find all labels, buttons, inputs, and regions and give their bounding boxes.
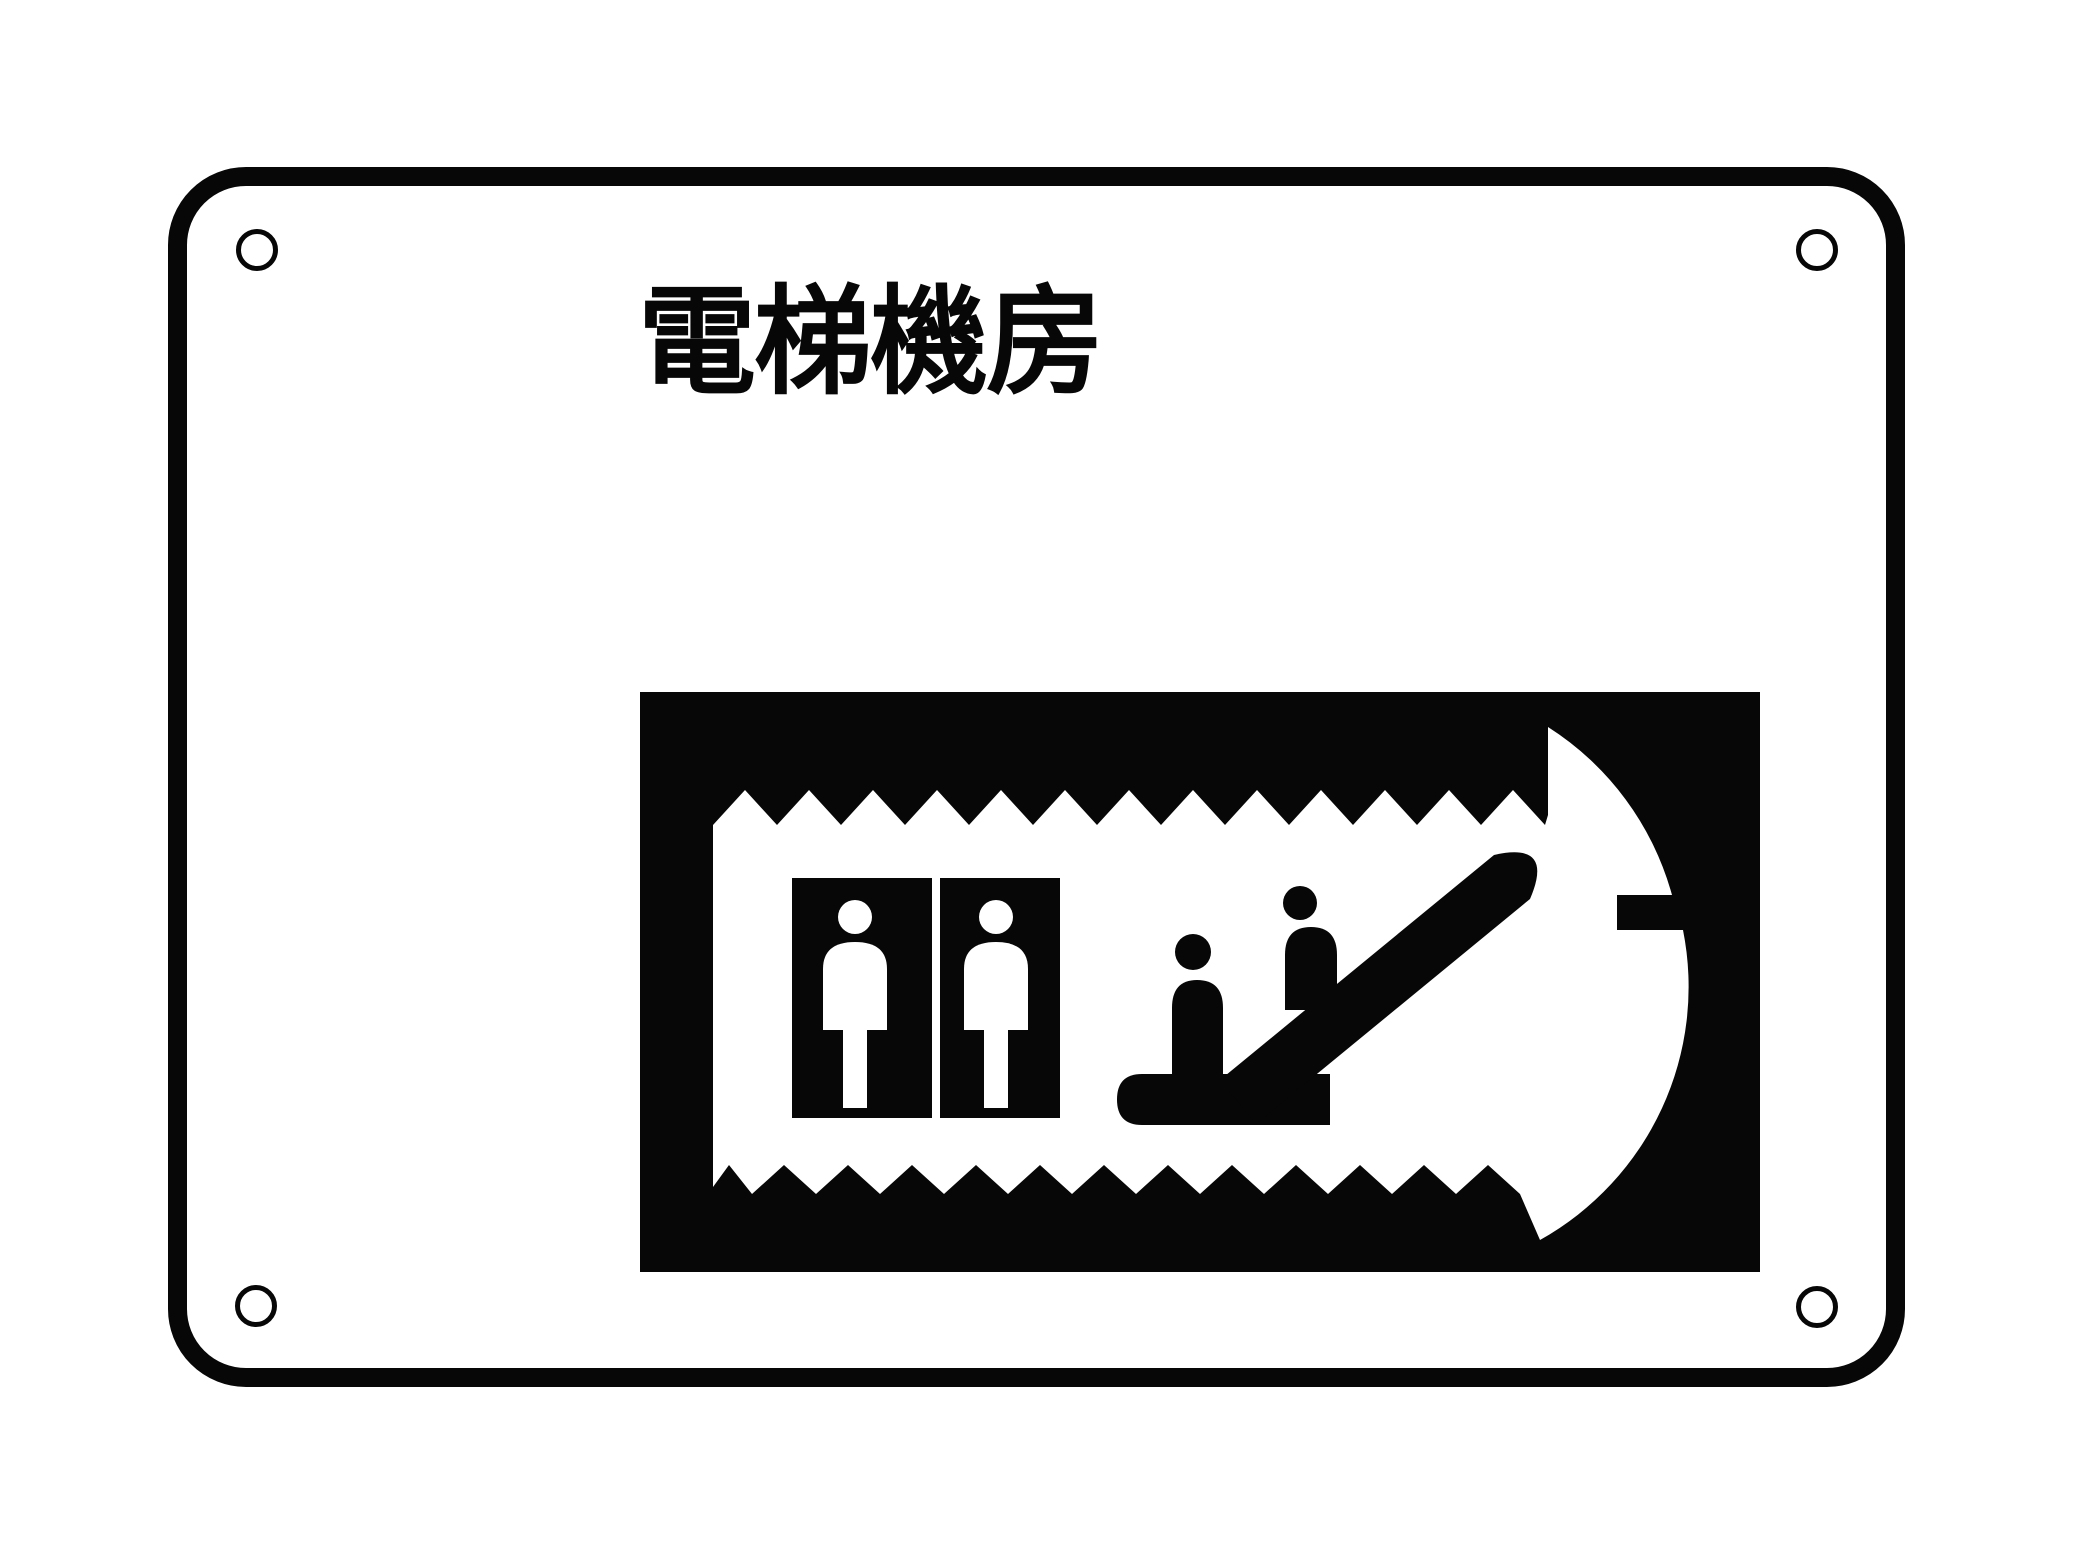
escalator-rider-body-2 [1285, 927, 1337, 1010]
elevator-passenger-head-1 [838, 900, 872, 934]
escalator-rider-body-1 [1172, 980, 1223, 1078]
pictogram-container [640, 692, 1760, 1272]
sign-plate: 電梯機房 [168, 167, 1905, 1387]
elevator-passenger-legs-1 [843, 1030, 867, 1108]
escalator-rider-head-2 [1283, 886, 1317, 920]
screw-hole-top-right [1796, 229, 1838, 271]
elevator-escalator-pictogram [640, 692, 1760, 1272]
sign-title: 電梯機房 [638, 279, 1102, 409]
escalator-rider-head-1 [1175, 934, 1211, 970]
screw-hole-bottom-left [235, 1285, 277, 1327]
elevator-passenger-body-1 [823, 942, 887, 1030]
sign-image: 電梯機房 [0, 0, 2074, 1555]
screw-hole-top-left [236, 229, 278, 271]
elevator-passenger-legs-2 [984, 1030, 1008, 1108]
elevator-passenger-body-2 [964, 942, 1028, 1030]
elevator-passenger-head-2 [979, 900, 1013, 934]
screw-hole-bottom-right [1796, 1286, 1838, 1328]
